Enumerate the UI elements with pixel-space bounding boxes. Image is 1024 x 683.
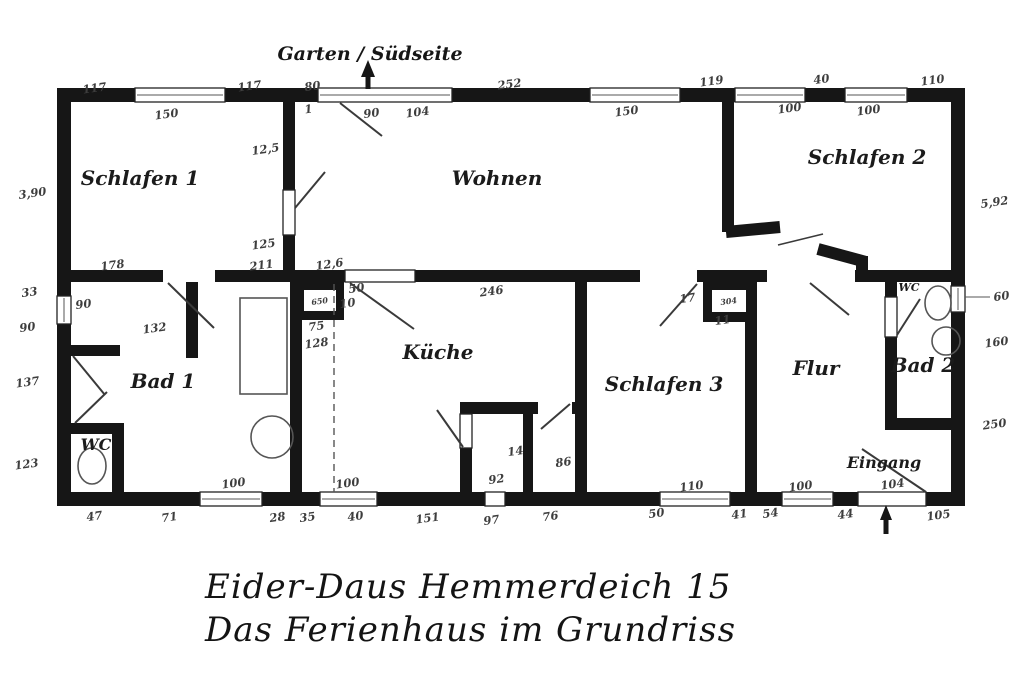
dimension-label-75: 75 (308, 318, 326, 334)
room-label-garten-südseite: Garten / Südseite (277, 43, 462, 65)
dimension-label-28: 28 (268, 509, 287, 525)
dimension-label-119: 119 (699, 72, 725, 89)
dimension-label-160: 160 (984, 333, 1010, 350)
dimension-label-41: 41 (731, 506, 749, 522)
dimension-label-150: 150 (614, 102, 640, 119)
dimension-label-92: 92 (488, 471, 506, 487)
dimension-label-3-90: 3,90 (18, 184, 48, 202)
floor-plan-drawing: Eider-Daus Hemmerdeich 15 Das Ferienhaus… (0, 0, 1024, 683)
dimension-label-137: 137 (15, 373, 41, 390)
dimension-label-105: 105 (926, 506, 952, 523)
dimension-label-125: 125 (251, 235, 277, 252)
room-label-flur: Flur (792, 356, 841, 380)
room-label-wohnen: Wohnen (452, 166, 543, 190)
dimension-label-14: 14 (507, 443, 525, 459)
dimension-label-104: 104 (880, 475, 906, 492)
title-line-1: Eider-Daus Hemmerdeich 15 (204, 567, 731, 607)
dimension-label-17: 17 (679, 290, 697, 306)
room-label-küche: Küche (402, 340, 474, 364)
room-label-schlafen-1: Schlafen 1 (81, 166, 199, 190)
dimension-label-150: 150 (154, 105, 180, 122)
dimension-label-86: 86 (555, 454, 573, 470)
dimension-label-110: 110 (920, 71, 946, 88)
room-label-eingang: Eingang (846, 453, 921, 472)
toilet-bad2 (925, 286, 951, 320)
dimension-label-47: 47 (86, 508, 104, 524)
dimension-label-54: 54 (762, 505, 780, 521)
door-swings (73, 103, 926, 492)
dimension-label-151: 151 (415, 509, 441, 526)
dimension-label-1: 1 (304, 102, 314, 117)
dimension-label-60: 60 (993, 288, 1011, 304)
dimension-label-100: 100 (856, 101, 882, 118)
dimension-label-50: 50 (348, 280, 366, 296)
room-label-bad-1: Bad 1 (130, 369, 196, 393)
title-line-2: Das Ferienhaus im Grundriss (204, 610, 736, 650)
dimension-label-11: 11 (714, 312, 732, 328)
dimension-label-246: 246 (478, 282, 505, 299)
sink-bad1 (251, 416, 293, 458)
dimension-label-90: 90 (363, 105, 381, 121)
entrance-arrow-icon (880, 505, 892, 534)
dimension-label-128: 128 (304, 334, 330, 351)
room-label-schlafen-3: Schlafen 3 (605, 372, 724, 396)
dimension-label-123: 123 (14, 455, 40, 472)
dimension-label-250: 250 (981, 415, 1008, 432)
dimension-label-90: 90 (19, 319, 37, 335)
dimension-label-35: 35 (299, 509, 317, 525)
dimension-label-76: 76 (542, 508, 560, 524)
dimension-label-40: 40 (813, 71, 831, 87)
dimension-label-97: 97 (483, 512, 501, 528)
dimension-label-5-92: 5,92 (980, 193, 1010, 211)
shower-bad1 (240, 298, 287, 394)
dimension-label-33: 33 (21, 284, 39, 300)
dimension-label-10: 10 (339, 295, 357, 311)
room-label-wc: WC (81, 435, 112, 454)
dimension-label-40: 40 (347, 508, 365, 524)
room-label-schlafen-2: Schlafen 2 (808, 145, 927, 169)
dimension-label-44: 44 (837, 506, 855, 522)
dimension-label-104: 104 (405, 103, 431, 120)
dimension-label-132: 132 (142, 319, 168, 336)
dimension-label-12-5: 12,5 (251, 140, 281, 158)
floor-plan-page: Eider-Daus Hemmerdeich 15 Das Ferienhaus… (0, 0, 1024, 683)
dimension-label-90: 90 (75, 296, 93, 312)
room-label-bad-2: Bad 2 (890, 353, 956, 377)
dimension-label-80: 80 (304, 78, 322, 94)
room-label-wc: WC (898, 281, 919, 294)
dimension-label-50: 50 (648, 505, 666, 521)
dimension-label-71: 71 (161, 509, 179, 525)
dimension-label-100: 100 (335, 474, 361, 491)
dimension-label-100: 100 (221, 474, 247, 491)
dimension-label-100: 100 (777, 99, 803, 116)
